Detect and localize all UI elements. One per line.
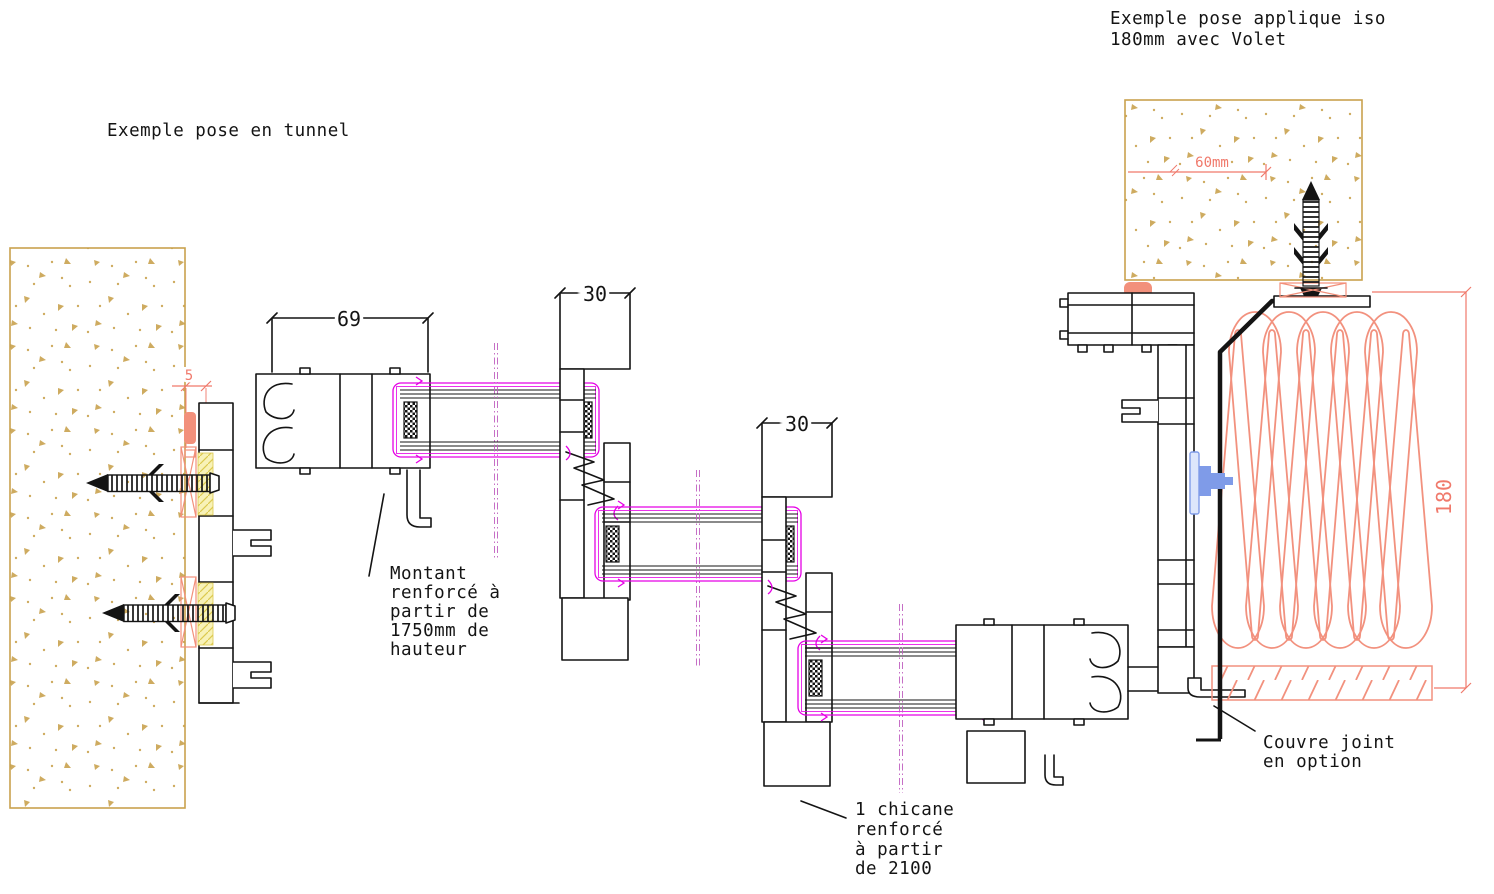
dim-69-label: 69 xyxy=(337,307,361,331)
dim-30-label-2: 30 xyxy=(785,412,809,436)
chicane-line2: renforcé xyxy=(855,820,943,840)
montant-line5: hauteur xyxy=(390,640,467,660)
couvre-line1: Couvre joint xyxy=(1263,733,1395,753)
sash3-centerline xyxy=(900,604,903,793)
drain-profile xyxy=(407,470,431,527)
annotation-montant: Montant renforcé à partir de 1750mm de h… xyxy=(369,494,500,660)
montant-line1: Montant xyxy=(390,564,467,584)
title-left: Exemple pose en tunnel xyxy=(107,121,350,141)
shutter-sill xyxy=(1212,666,1432,700)
interlock2-reinforcement-box xyxy=(764,722,830,786)
montant-line2: renforcé à xyxy=(390,583,500,603)
dim-60mm-label: 60mm xyxy=(1195,155,1229,171)
section-drawing: 5 xyxy=(0,0,1494,894)
annotation-couvre-joint: Couvre joint en option xyxy=(1214,706,1395,772)
chicane-line3: à partir xyxy=(855,840,943,860)
shutter-coil xyxy=(1212,312,1432,648)
cad-drawing-sheet: 5 xyxy=(0,0,1494,894)
dimension-interlock2: 30 xyxy=(757,412,837,497)
title-right-line1: Exemple pose applique iso xyxy=(1110,9,1386,29)
leader-line-chicane xyxy=(801,801,846,818)
dimension-interlock1: 30 xyxy=(555,282,635,369)
title-right-line2: 180mm avec Volet xyxy=(1110,30,1287,50)
chicane-line1: 1 chicane xyxy=(855,800,954,820)
dim-5-label: 5 xyxy=(185,368,193,384)
montant-line3: partir de xyxy=(390,602,489,622)
wall-left xyxy=(10,248,185,808)
dim-30-label-1: 30 xyxy=(583,282,607,306)
montant-line4: 1750mm de xyxy=(390,621,489,641)
frame-seal xyxy=(184,412,196,444)
sash2-centerline xyxy=(697,470,700,668)
sash3-right-jamb xyxy=(956,619,1158,785)
chicane-line4: de 2100 xyxy=(855,859,932,879)
interlock1-reinforcement-box xyxy=(562,598,628,660)
leader-line-montant xyxy=(369,494,384,576)
annotation-chicane: 1 chicane renforcé à partir de 2100 xyxy=(801,800,954,879)
shutter-fixing-bolt xyxy=(1190,452,1233,514)
couvre-line2: en option xyxy=(1263,752,1362,772)
dim-180-label: 180 xyxy=(1432,479,1456,515)
dimension-sash-width: 69 xyxy=(267,307,433,372)
